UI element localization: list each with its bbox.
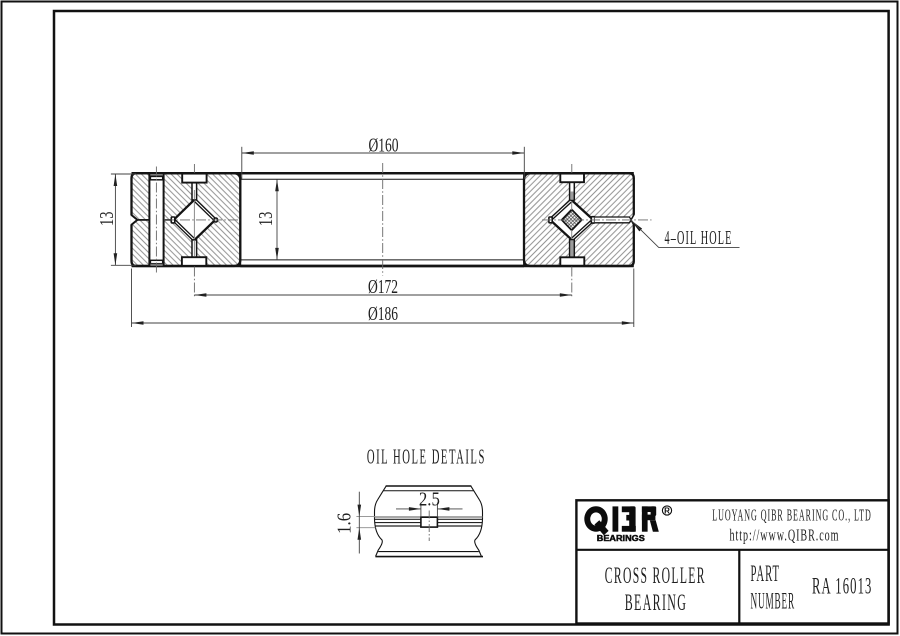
svg-text:LUOYANG QIBR BEARING CO., LTD: LUOYANG QIBR BEARING CO., LTD [712, 506, 872, 525]
svg-text:OIL HOLE DETAILS: OIL HOLE DETAILS [367, 445, 486, 469]
svg-text:4–OIL HOLE: 4–OIL HOLE [665, 228, 733, 249]
svg-text:Ø186: Ø186 [368, 304, 398, 325]
svg-text:BEARING: BEARING [625, 590, 688, 615]
svg-text:http://www.QIBR.com: http://www.QIBR.com [730, 525, 840, 544]
svg-text:Ø172: Ø172 [368, 277, 398, 298]
svg-text:13: 13 [97, 212, 118, 227]
svg-text:NUMBER: NUMBER [751, 589, 796, 614]
svg-text:2.5: 2.5 [419, 490, 440, 511]
svg-text:CROSS ROLLER: CROSS ROLLER [605, 563, 706, 588]
svg-text:RA 16013: RA 16013 [812, 574, 873, 599]
svg-text:13: 13 [256, 212, 277, 227]
svg-text:R: R [664, 506, 670, 515]
svg-text:BEARINGS: BEARINGS [597, 533, 645, 543]
svg-text:Ø160: Ø160 [369, 136, 399, 157]
svg-text:1.6: 1.6 [334, 513, 355, 534]
svg-text:PART: PART [751, 561, 781, 586]
